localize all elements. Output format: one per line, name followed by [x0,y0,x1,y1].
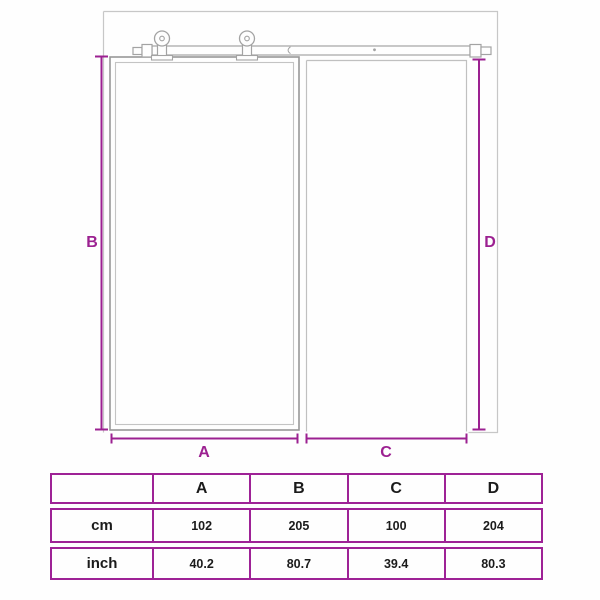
dimension-label-a: A [198,444,210,461]
rail-end-cap-right-inner [470,45,481,58]
rail-end-cap-left-inner [142,45,152,58]
dimension-label-c: C [380,444,392,461]
rail-end-cap-right-outer [481,47,491,55]
rail-screw-dot [373,48,376,51]
dimension-label-d: D [484,234,496,251]
door-panel-outer [110,57,299,430]
door-dimension-drawing: B D A C [0,0,600,470]
value-inch-a: 40.2 [152,549,249,578]
table-col-header-b: B [249,475,346,502]
value-cm-a: 102 [152,510,249,541]
dimension-line-c [307,434,467,444]
dimension-label-b: B [86,234,98,251]
table-col-header-d: D [444,475,541,502]
row-unit-label: inch [52,549,152,578]
value-cm-c: 100 [347,510,444,541]
row-unit-label: cm [52,510,152,541]
rail-end-cap-left-outer [133,48,142,55]
value-cm-d: 204 [444,510,541,541]
table-col-header-a: A [152,475,249,502]
value-inch-c: 39.4 [347,549,444,578]
table-col-header-c: C [347,475,444,502]
table-corner-cell [52,475,152,502]
doorway-opening [307,61,467,432]
table-header-row: A B C D [50,473,543,504]
sliding-rail [152,46,470,55]
value-inch-b: 80.7 [249,549,346,578]
table-row-inch: inch 40.2 80.7 39.4 80.3 [50,547,543,580]
dimension-line-a [112,434,298,444]
value-inch-d: 80.3 [444,549,541,578]
product-dimension-image: B D A C A B C D [0,0,600,600]
dimensions-table: A B C D cm 102 205 100 204 inch 40.2 80.… [50,473,543,580]
value-cm-b: 205 [249,510,346,541]
table-row-cm: cm 102 205 100 204 [50,508,543,543]
